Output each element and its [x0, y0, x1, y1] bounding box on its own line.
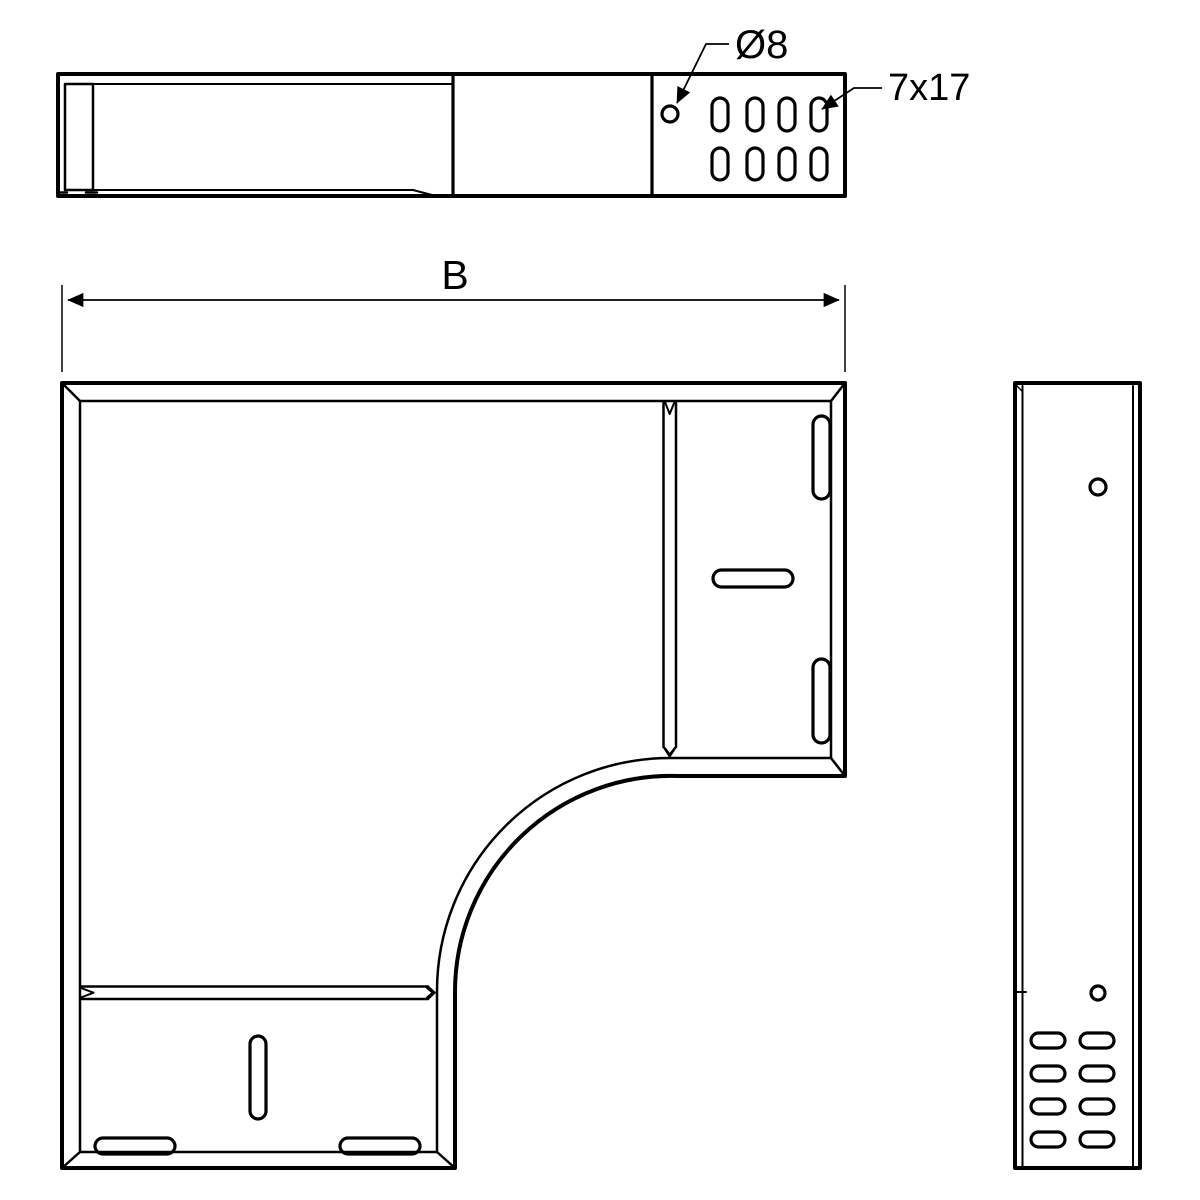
- hole-diameter-label: Ø8: [735, 23, 788, 67]
- round-hole-upper: [1090, 479, 1106, 495]
- seam-top-notch: [665, 402, 675, 414]
- slot: [811, 98, 827, 131]
- slot: [1031, 1099, 1065, 1114]
- leader-line-slot: [822, 88, 882, 109]
- slot: [1080, 1033, 1114, 1048]
- slot: [811, 148, 827, 180]
- top-view: [58, 74, 845, 196]
- slot: [250, 1036, 266, 1119]
- seam-rails: [664, 403, 677, 747]
- seam-left-notch: [81, 988, 94, 998]
- round-hole-lower: [1091, 986, 1105, 1000]
- slot: [712, 98, 728, 131]
- slot-grid-top-view: [712, 98, 827, 180]
- weld-seam-vertical: [664, 402, 677, 757]
- weld-seam-horizontal: [81, 987, 435, 1000]
- slot: [779, 148, 795, 180]
- slot: [712, 148, 728, 180]
- side-view: [1015, 383, 1140, 1168]
- slot: [813, 659, 830, 743]
- seam-right-tip: [427, 987, 435, 1000]
- slot: [713, 570, 793, 587]
- slot: [1080, 1099, 1114, 1114]
- slot: [1080, 1066, 1114, 1081]
- slot: [1031, 1033, 1065, 1048]
- dimension-b: B: [62, 252, 845, 372]
- slot-grid-side-view: [1031, 1033, 1114, 1147]
- callout-hole-diameter: Ø8: [677, 23, 788, 103]
- technical-drawing-page: Ø8 7x17 B: [0, 0, 1200, 1200]
- slot: [747, 98, 763, 131]
- seam-rails: [81, 987, 428, 1000]
- slot: [779, 98, 795, 131]
- slot: [1031, 1066, 1065, 1081]
- slot-size-label: 7x17: [888, 67, 970, 109]
- slot: [747, 148, 763, 180]
- end-plate: [65, 84, 93, 190]
- technical-drawing-canvas: Ø8 7x17 B: [0, 0, 1200, 1200]
- slot: [813, 416, 830, 499]
- seam-bottom-tip: [664, 747, 677, 757]
- slot-group-plan-view: [95, 416, 830, 1154]
- slot: [1031, 1132, 1065, 1147]
- plan-view-bend: [62, 383, 845, 1168]
- dimension-b-label: B: [441, 252, 468, 298]
- slot: [1080, 1132, 1114, 1147]
- bend-outer-outline: [62, 383, 845, 1168]
- round-hole: [662, 106, 678, 122]
- side-view-outline: [1015, 383, 1140, 1168]
- extension-lines: [62, 285, 845, 372]
